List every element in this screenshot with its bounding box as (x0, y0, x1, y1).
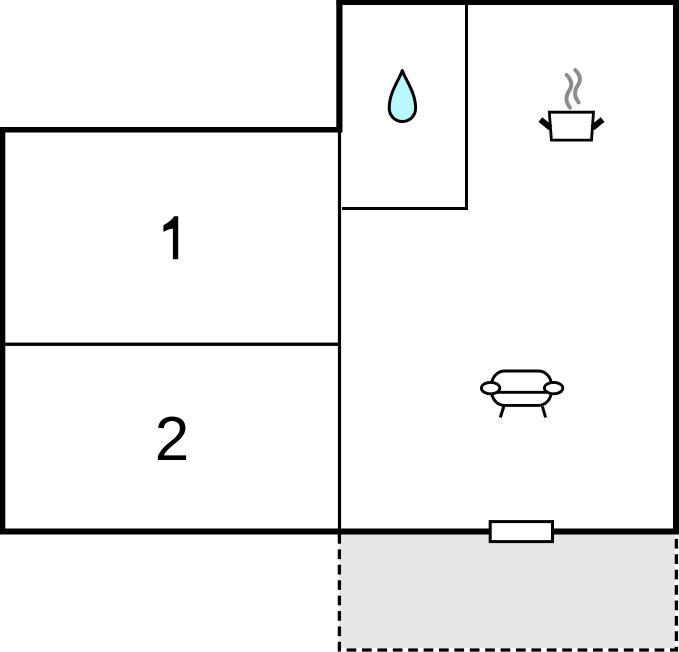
svg-text:2: 2 (155, 405, 189, 474)
